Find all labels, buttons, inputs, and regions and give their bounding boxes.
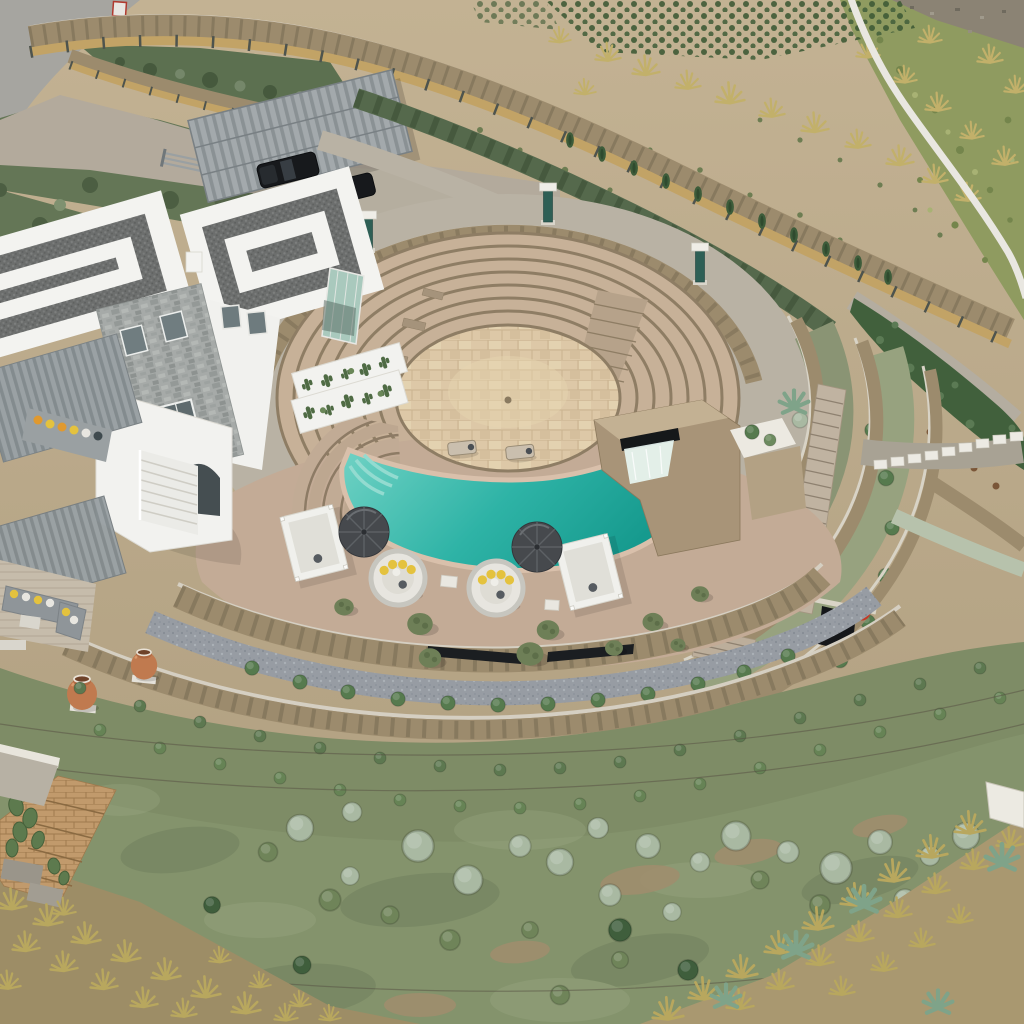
stage-drain	[505, 397, 512, 404]
side-table-2	[545, 600, 560, 611]
round-daybed-right	[467, 559, 525, 617]
road-sign	[113, 2, 127, 17]
umbrella-right	[512, 522, 562, 572]
stage-highlight	[448, 356, 568, 428]
aerial-photograph	[0, 0, 1024, 1024]
planter-bush	[764, 434, 776, 446]
umbrella-left	[339, 507, 389, 557]
shuttered-window	[247, 311, 267, 335]
side-table-1	[440, 575, 457, 588]
waterfall-side-wall	[744, 446, 806, 520]
aerial-photo	[0, 0, 1024, 1024]
coffee-table-2	[0, 640, 26, 650]
shuttered-window	[221, 305, 241, 329]
round-daybed-left	[368, 548, 427, 607]
planter-bush	[745, 425, 759, 439]
chimney	[186, 252, 202, 272]
